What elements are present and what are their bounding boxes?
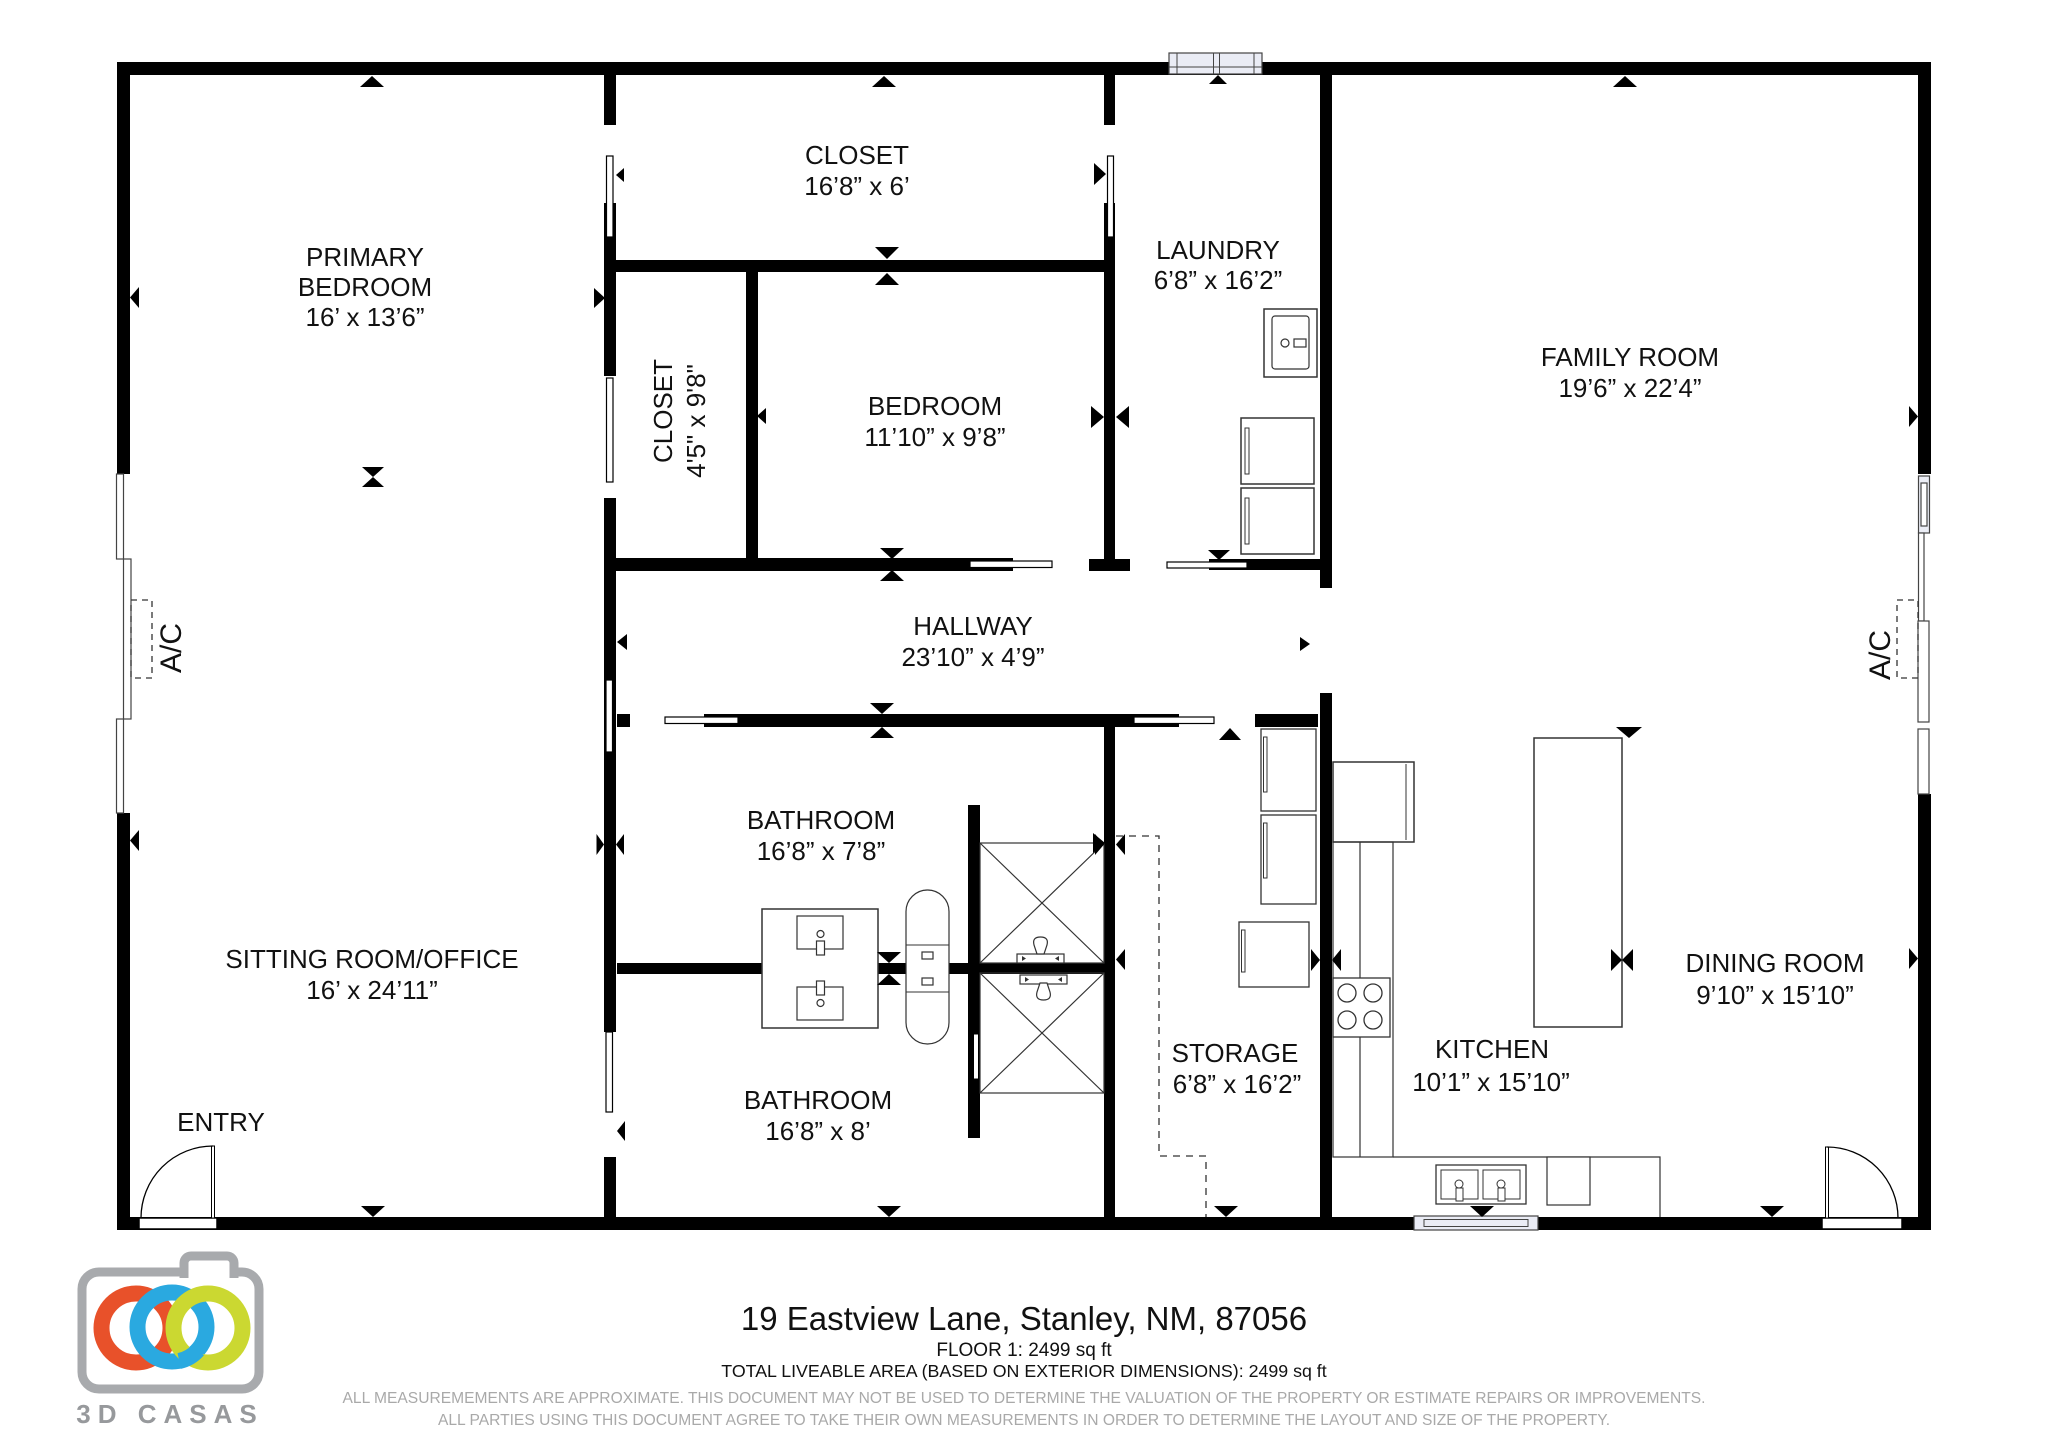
svg-text:16’8” x 8’: 16’8” x 8’ [765,1116,871,1146]
svg-text:6’8” x 16’2”: 6’8” x 16’2” [1154,265,1283,295]
svg-text:11’10” x 9’8”: 11’10” x 9’8” [864,422,1005,452]
svg-text:BATHROOM: BATHROOM [747,805,895,835]
svg-text:HALLWAY: HALLWAY [913,611,1032,641]
svg-text:BEDROOM: BEDROOM [298,272,432,302]
svg-text:CLOSET: CLOSET [805,140,909,170]
svg-text:BATHROOM: BATHROOM [744,1085,892,1115]
svg-text:TOTAL LIVEABLE AREA (BASED ON: TOTAL LIVEABLE AREA (BASED ON EXTERIOR D… [721,1361,1326,1381]
svg-text:16’ x 13’6”: 16’ x 13’6” [306,302,425,332]
svg-text:KITCHEN: KITCHEN [1435,1034,1549,1064]
svg-text:23’10” x 4’9”: 23’10” x 4’9” [901,642,1044,672]
svg-text:A/C: A/C [1864,630,1897,680]
svg-text:BEDROOM: BEDROOM [868,391,1002,421]
svg-text:SITTING ROOM/OFFICE: SITTING ROOM/OFFICE [225,944,518,974]
svg-text:STORAGE: STORAGE [1172,1038,1299,1068]
svg-text:19’6” x 22’4”: 19’6” x 22’4” [1558,373,1701,403]
svg-text:16’ x 24’11”: 16’ x 24’11” [306,975,438,1005]
svg-text:PRIMARY: PRIMARY [306,242,424,272]
svg-text:FAMILY ROOM: FAMILY ROOM [1541,342,1719,372]
svg-text:A/C: A/C [155,623,188,673]
svg-text:10’1” x 15’10”: 10’1” x 15’10” [1412,1067,1570,1097]
svg-text:3D CASAS: 3D CASAS [76,1399,263,1429]
svg-text:CLOSET: CLOSET [648,359,678,463]
svg-text:ALL PARTIES USING THIS DOCUMEN: ALL PARTIES USING THIS DOCUMENT AGREE TO… [438,1412,1610,1429]
svg-text:16’8” x 7’8”: 16’8” x 7’8” [757,836,886,866]
svg-text:4'5" x 9'8": 4'5" x 9'8" [681,364,711,478]
svg-text:19 Eastview Lane, Stanley, NM,: 19 Eastview Lane, Stanley, NM, 87056 [741,1300,1307,1337]
svg-text:16’8” x 6’: 16’8” x 6’ [804,171,910,201]
svg-text:LAUNDRY: LAUNDRY [1156,235,1280,265]
svg-text:9’10” x 15’10”: 9’10” x 15’10” [1696,980,1854,1010]
svg-text:ENTRY: ENTRY [177,1107,265,1137]
svg-text:FLOOR 1: 2499 sq ft: FLOOR 1: 2499 sq ft [936,1340,1112,1361]
svg-text:DINING ROOM: DINING ROOM [1685,948,1864,978]
svg-text:6’8” x 16’2”: 6’8” x 16’2” [1173,1069,1302,1099]
svg-text:ALL MEASUREMEMENTS ARE APPROXI: ALL MEASUREMEMENTS ARE APPROXIMATE. THIS… [343,1390,1706,1407]
